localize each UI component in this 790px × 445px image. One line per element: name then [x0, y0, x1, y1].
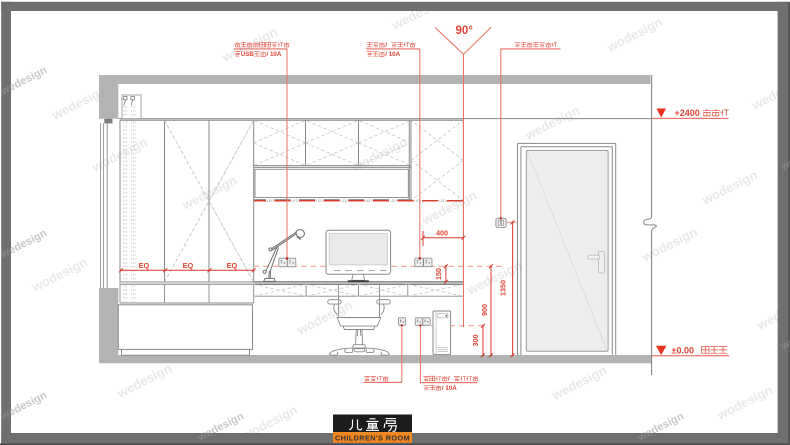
svg-text:LED: LED: [414, 199, 421, 203]
svg-text:±0.00: ±0.00: [672, 346, 694, 356]
svg-text:LED: LED: [340, 199, 347, 203]
svg-text:150: 150: [434, 268, 443, 280]
svg-text:USB: USB: [241, 51, 255, 58]
svg-text:LED: LED: [291, 199, 298, 203]
svg-text:/ 10A: / 10A: [267, 51, 282, 58]
svg-text:LED: LED: [439, 199, 446, 203]
svg-text:EQ: EQ: [183, 261, 194, 270]
svg-text:900: 900: [480, 304, 489, 316]
svg-text:90°: 90°: [456, 25, 474, 37]
svg-text:LED: LED: [365, 199, 372, 203]
svg-text:CHILDREN'S ROOM: CHILDREN'S ROOM: [335, 433, 410, 442]
svg-text:/ 10A: / 10A: [385, 51, 400, 58]
svg-text:LED: LED: [390, 199, 397, 203]
svg-text:LED: LED: [267, 199, 274, 203]
svg-text:/ 10A: / 10A: [442, 385, 457, 392]
svg-text:+2400: +2400: [675, 108, 700, 118]
svg-text:/: /: [448, 376, 450, 383]
svg-text:LED: LED: [316, 199, 323, 203]
svg-text:1350: 1350: [499, 280, 508, 296]
svg-text:400: 400: [436, 229, 448, 238]
svg-text:EQ: EQ: [227, 261, 238, 270]
svg-text:/: /: [385, 42, 387, 49]
svg-text:EQ: EQ: [139, 261, 150, 270]
svg-text:300: 300: [471, 335, 480, 347]
